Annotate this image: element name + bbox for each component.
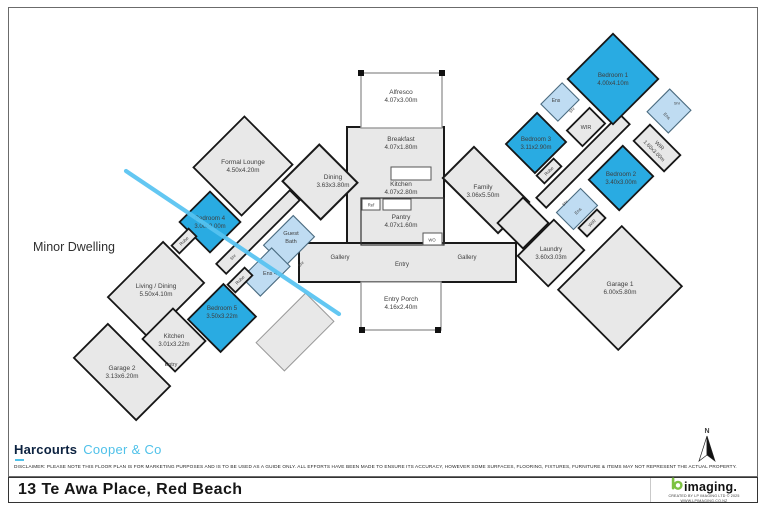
label-laundry: Laundry <box>540 246 563 253</box>
label-bedroom-1: 4.00x4.10m <box>597 81 628 87</box>
label-ens-1: Ens <box>552 98 561 104</box>
label-bedroom-1: Bedroom 1 <box>598 72 629 79</box>
label-living-dining: Living / Dining <box>136 283 177 290</box>
label-kitchen-main: 4.07x2.80m <box>385 189 418 196</box>
label-alfresco: 4.07x3.00m <box>385 97 418 104</box>
label-garage-1: 6.00x5.80m <box>604 289 637 296</box>
floorplan-page: Formal Lounge4.50x4.20mLiving / Dining5.… <box>0 0 768 512</box>
kitchen-island <box>391 167 431 180</box>
label-dining: Dining <box>324 174 343 181</box>
label-entry-porch: Entry Porch <box>384 296 418 303</box>
label-garage-1: Garage 1 <box>606 281 633 288</box>
label-garage-2: 3.13x6.20m <box>106 373 139 380</box>
porch-post <box>435 327 441 333</box>
lp-imaging-mark-icon <box>671 477 683 494</box>
north-needle-east <box>707 436 715 461</box>
label-kitchen-minor: 3.01x3.22m <box>158 342 189 348</box>
label-alfresco: Alfresco <box>389 89 413 96</box>
label-entry-minor: Entry <box>165 362 178 368</box>
alfresco-post <box>358 70 364 76</box>
label-breakfast: Breakfast <box>387 136 415 143</box>
imaging-logo: imaging. <box>671 477 737 494</box>
north-needle-west <box>699 436 707 461</box>
label-kitchen-main: Kitchen <box>390 181 412 188</box>
label-living-dining: 5.50x4.10m <box>140 291 173 298</box>
minor-dwelling-label: Minor Dwelling <box>33 240 115 254</box>
label-garage-2: Garage 2 <box>108 365 135 372</box>
label-dining: 3.63x3.80m <box>317 182 350 189</box>
label-pantry: 4.07x1.60m <box>385 222 418 229</box>
imaging-logo-block: imaging. CREATED BY LP IMAGING LTD © 202… <box>650 478 757 502</box>
label-formal-lounge: 4.50x4.20m <box>227 167 260 174</box>
label-guest-bath: Guest <box>283 231 299 237</box>
porch-post <box>359 327 365 333</box>
north-label: N <box>704 428 709 435</box>
label-laundry: 3.60x3.03m <box>535 255 566 261</box>
agency-name: Harcourts <box>14 442 77 457</box>
imaging-wordmark: imaging. <box>684 481 737 494</box>
label-bedroom-3: 3.11x2.90m <box>521 145 552 151</box>
imaging-credit-line2: WWW.LPIMAGING.CO.NZ <box>681 499 728 504</box>
address-bar: 13 Te Awa Place, Red Beach imaging. CREA… <box>8 477 758 503</box>
label-guest-bath: Bath <box>285 239 297 245</box>
label-family: Family <box>473 184 493 191</box>
room-ens-2 <box>647 89 691 133</box>
label-ref: Ref <box>368 202 375 207</box>
label-bedroom-2: 3.40x3.00m <box>605 180 636 186</box>
label-pantry: Pantry <box>392 214 412 221</box>
pantry-bench <box>383 199 411 210</box>
label-shr-ens2: Shr <box>674 100 681 105</box>
agency-logo-underline <box>15 459 24 461</box>
label-bedroom-2: Bedroom 2 <box>606 171 637 178</box>
agency-logo: HarcourtsCooper & Co <box>14 443 162 457</box>
label-breakfast: 4.07x1.80m <box>385 144 418 151</box>
label-entry-main: Entry <box>395 262 409 268</box>
label-gallery-left: Gallery <box>330 255 349 261</box>
label-bedroom-3: Bedroom 3 <box>521 136 552 143</box>
label-bedroom-5: 3.50x3.22m <box>206 314 237 320</box>
alfresco-post <box>439 70 445 76</box>
disclaimer-text: DISCLAIMER: PLEASE NOTE THIS FLOOR PLAN … <box>14 464 754 469</box>
north-arrow-icon: N <box>699 428 715 461</box>
label-entry-porch: 4.16x2.40m <box>385 304 418 311</box>
label-bedroom-5: Bedroom 5 <box>207 305 238 312</box>
label-family: 3.06x5.50m <box>467 192 500 199</box>
agency-suffix: Cooper & Co <box>83 442 161 457</box>
label-wir-1: WIR <box>581 125 592 131</box>
label-kitchen-minor: Kitchen <box>164 333 185 340</box>
floorplan-drawing: Formal Lounge4.50x4.20mLiving / Dining5.… <box>0 0 768 512</box>
label-formal-lounge: Formal Lounge <box>221 159 265 166</box>
label-wo: WO <box>428 237 436 242</box>
property-address: 13 Te Awa Place, Red Beach <box>9 481 650 499</box>
label-gallery-right: Gallery <box>457 255 476 261</box>
